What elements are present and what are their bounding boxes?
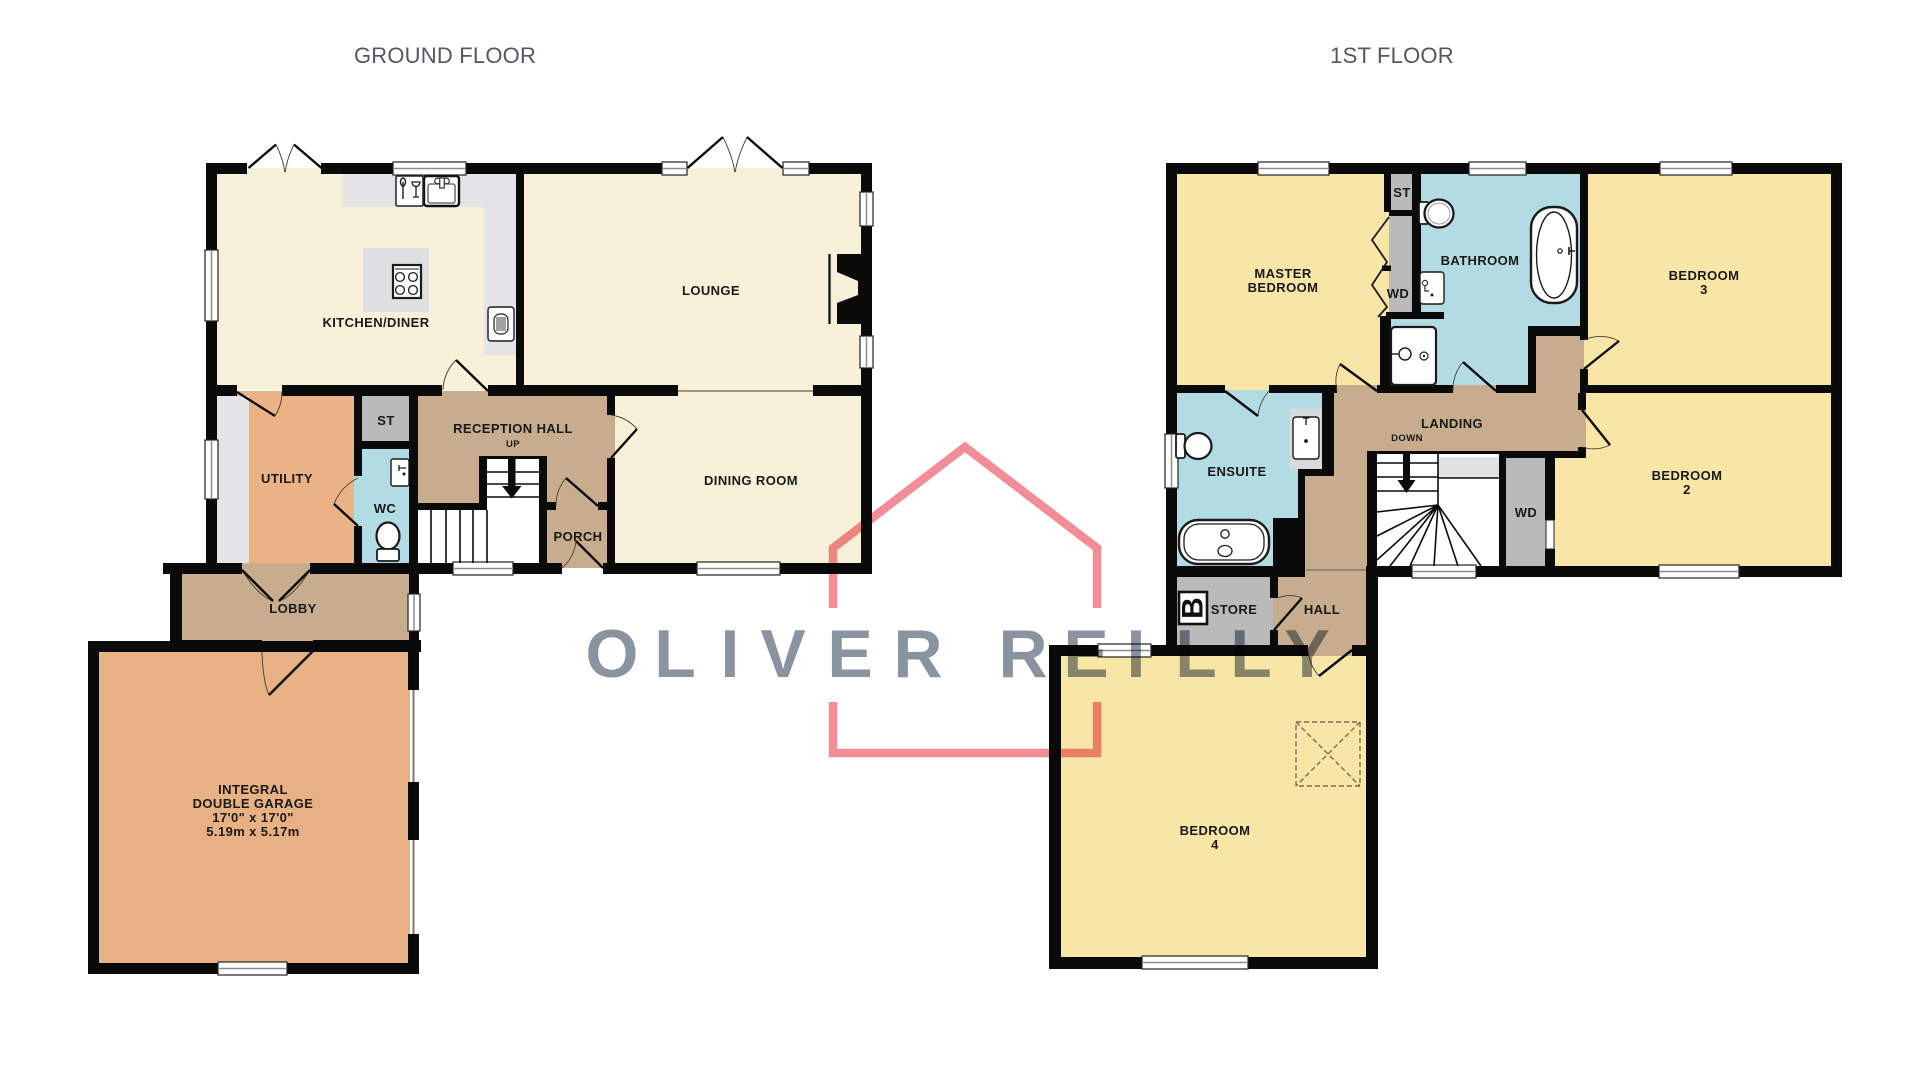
svg-text:R: R <box>893 616 942 692</box>
svg-text:GROUND FLOOR: GROUND FLOOR <box>354 43 536 68</box>
svg-text:HALL: HALL <box>1304 602 1340 617</box>
svg-text:ST: ST <box>377 413 394 428</box>
svg-text:3: 3 <box>1700 282 1708 297</box>
svg-text:DINING ROOM: DINING ROOM <box>704 473 798 488</box>
svg-text:BEDROOM: BEDROOM <box>1669 268 1740 283</box>
svg-text:BEDROOM: BEDROOM <box>1248 280 1319 295</box>
svg-text:WD: WD <box>1387 286 1409 301</box>
svg-text:1ST FLOOR: 1ST FLOOR <box>1330 43 1454 68</box>
svg-text:PORCH: PORCH <box>554 529 603 544</box>
svg-text:INTEGRAL: INTEGRAL <box>218 782 288 797</box>
svg-text:LOBBY: LOBBY <box>269 601 317 616</box>
svg-text:4: 4 <box>1211 837 1219 852</box>
svg-text:STORE: STORE <box>1211 602 1258 617</box>
svg-text:ST: ST <box>1393 185 1410 200</box>
svg-text:WD: WD <box>1515 505 1537 520</box>
svg-text:DOUBLE GARAGE: DOUBLE GARAGE <box>193 796 314 811</box>
svg-text:E: E <box>1063 616 1108 692</box>
svg-text:L: L <box>1175 616 1217 692</box>
svg-text:ENSUITE: ENSUITE <box>1207 464 1266 479</box>
svg-text:I: I <box>1127 616 1146 692</box>
svg-text:L: L <box>1230 616 1272 692</box>
svg-text:BATHROOM: BATHROOM <box>1441 253 1520 268</box>
svg-text:BEDROOM: BEDROOM <box>1180 823 1251 838</box>
svg-text:I: I <box>721 616 740 692</box>
svg-text:WC: WC <box>374 501 397 516</box>
svg-text:O: O <box>586 616 639 692</box>
svg-text:DOWN: DOWN <box>1391 433 1423 444</box>
svg-text:BEDROOM: BEDROOM <box>1652 468 1723 483</box>
svg-text:Y: Y <box>1284 616 1329 692</box>
svg-text:2: 2 <box>1683 482 1691 497</box>
svg-text:UP: UP <box>506 439 520 450</box>
svg-text:LANDING: LANDING <box>1421 416 1483 431</box>
svg-text:RECEPTION HALL: RECEPTION HALL <box>453 421 573 436</box>
svg-text:L: L <box>654 616 696 692</box>
svg-text:KITCHEN/DINER: KITCHEN/DINER <box>322 315 429 330</box>
svg-text:17'0" x 17'0": 17'0" x 17'0" <box>212 810 294 825</box>
svg-text:UTILITY: UTILITY <box>261 471 313 486</box>
svg-text:R: R <box>998 616 1047 692</box>
svg-text:E: E <box>827 616 872 692</box>
svg-text:5.19m x 5.17m: 5.19m x 5.17m <box>206 824 299 839</box>
svg-text:V: V <box>760 616 805 692</box>
svg-text:MASTER: MASTER <box>1254 266 1312 281</box>
svg-text:LOUNGE: LOUNGE <box>682 283 740 298</box>
